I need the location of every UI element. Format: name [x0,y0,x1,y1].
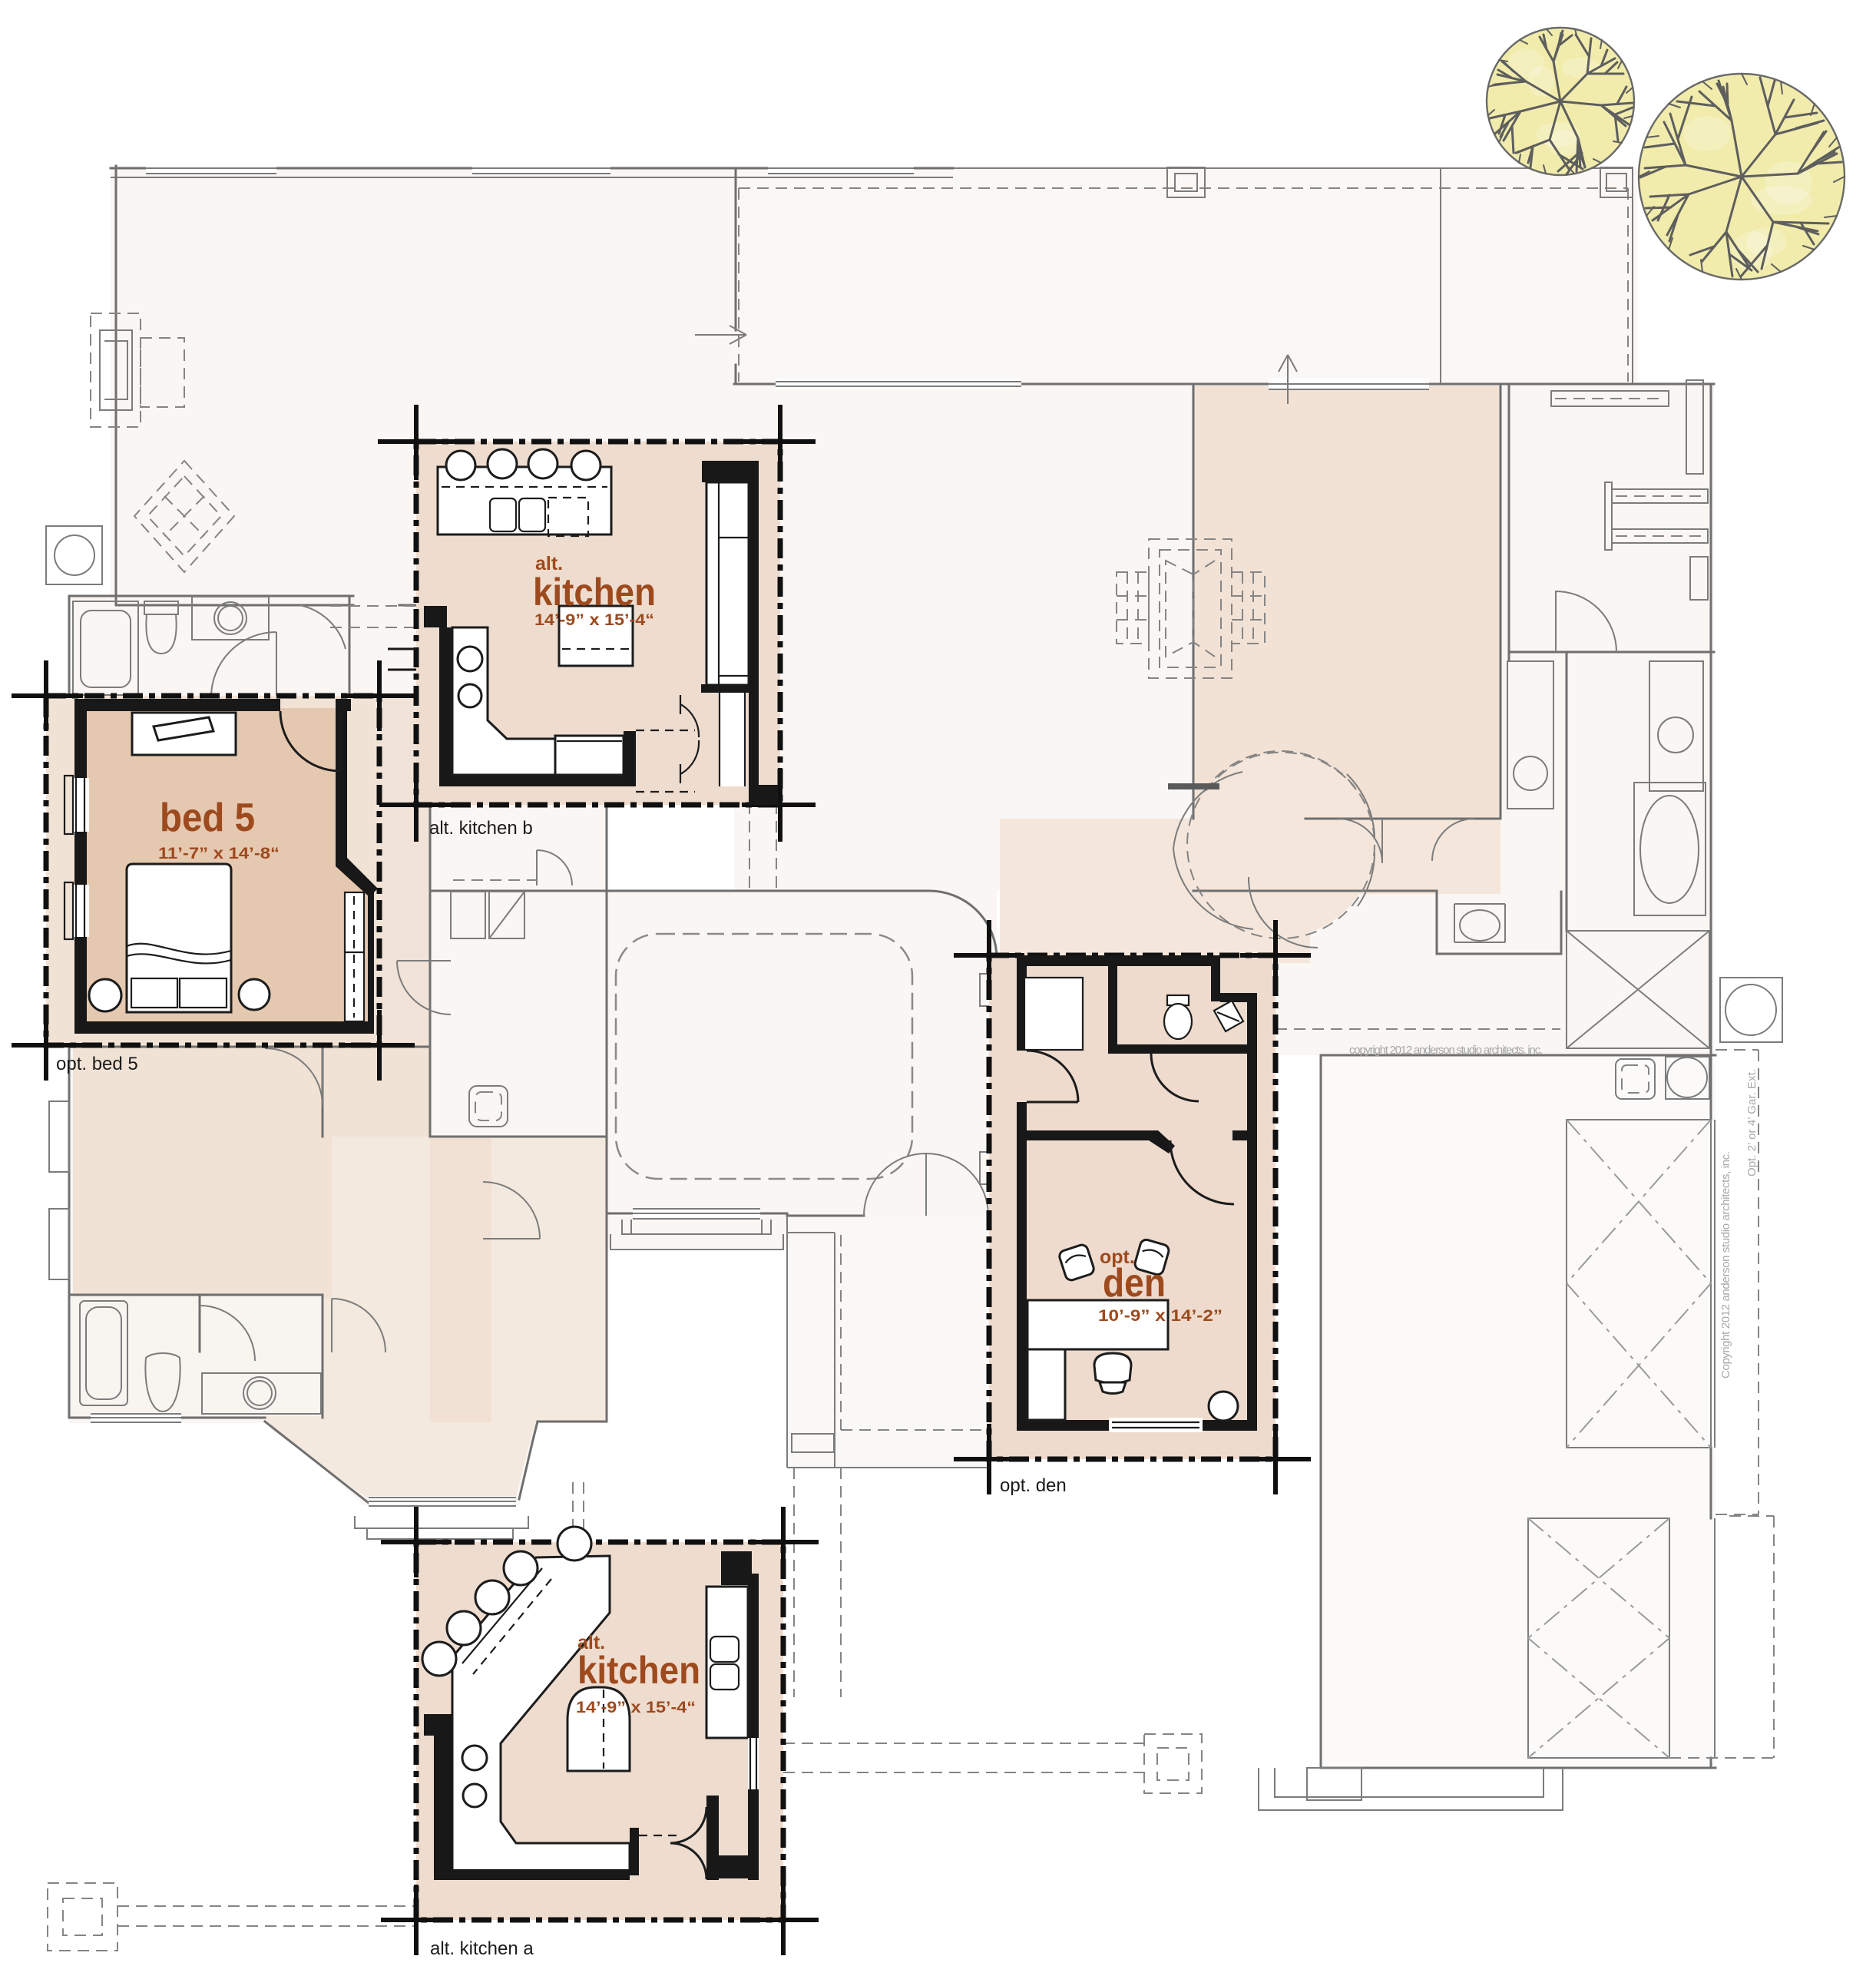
svg-text:alt. kitchen a: alt. kitchen a [430,1938,534,1959]
svg-text:10’-9” x 14’-2”: 10’-9” x 14’-2” [1098,1307,1223,1325]
svg-text:den: den [1103,1261,1166,1306]
svg-text:kitchen: kitchen [577,1649,700,1692]
svg-text:11’-7” x 14’-8“: 11’-7” x 14’-8“ [158,845,280,862]
svg-text:bed 5: bed 5 [160,796,255,840]
svg-text:alt. kitchen b: alt. kitchen b [429,818,533,839]
svg-text:14’-9” x 15’-4“: 14’-9” x 15’-4“ [576,1699,696,1716]
svg-text:opt. bed 5: opt. bed 5 [56,1054,138,1074]
svg-text:opt. den: opt. den [1000,1475,1067,1496]
svg-text:copyright 2012 anderson studio: copyright 2012 anderson studio architect… [1349,1044,1543,1057]
svg-text:Copyright 2012 anderson studio: Copyright 2012 anderson studio architect… [1719,1151,1732,1379]
svg-text:14’-9” x 15’-4“: 14’-9” x 15’-4“ [534,611,654,629]
svg-text:kitchen: kitchen [533,571,656,614]
svg-text:Opt. 2’ or 4’ Gar. Ext.: Opt. 2’ or 4’ Gar. Ext. [1745,1069,1759,1177]
